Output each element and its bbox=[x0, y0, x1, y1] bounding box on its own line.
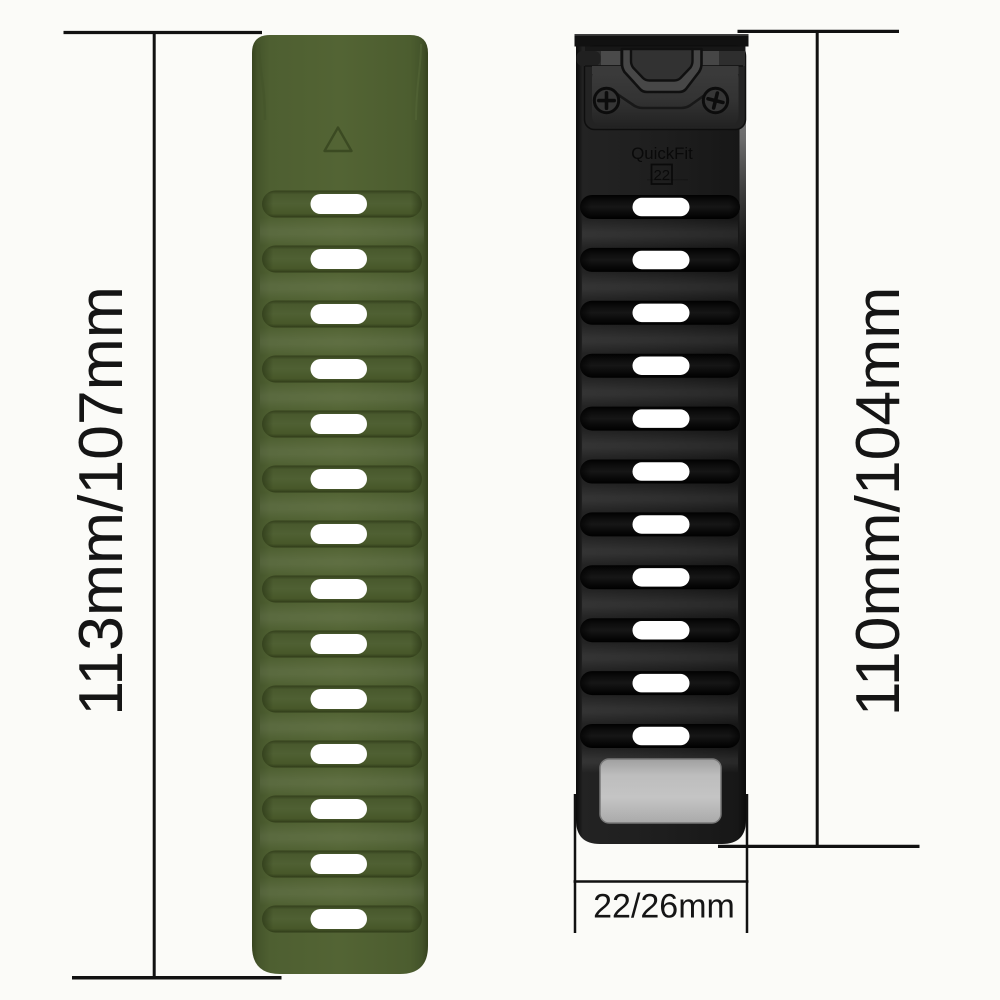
svg-text:22: 22 bbox=[653, 167, 670, 184]
svg-text:110mm/104mm: 110mm/104mm bbox=[843, 287, 913, 717]
svg-text:113mm/107mm: 113mm/107mm bbox=[66, 286, 136, 716]
svg-text:22/26mm: 22/26mm bbox=[593, 888, 735, 926]
svg-text:QuickFit: QuickFit bbox=[631, 144, 693, 163]
